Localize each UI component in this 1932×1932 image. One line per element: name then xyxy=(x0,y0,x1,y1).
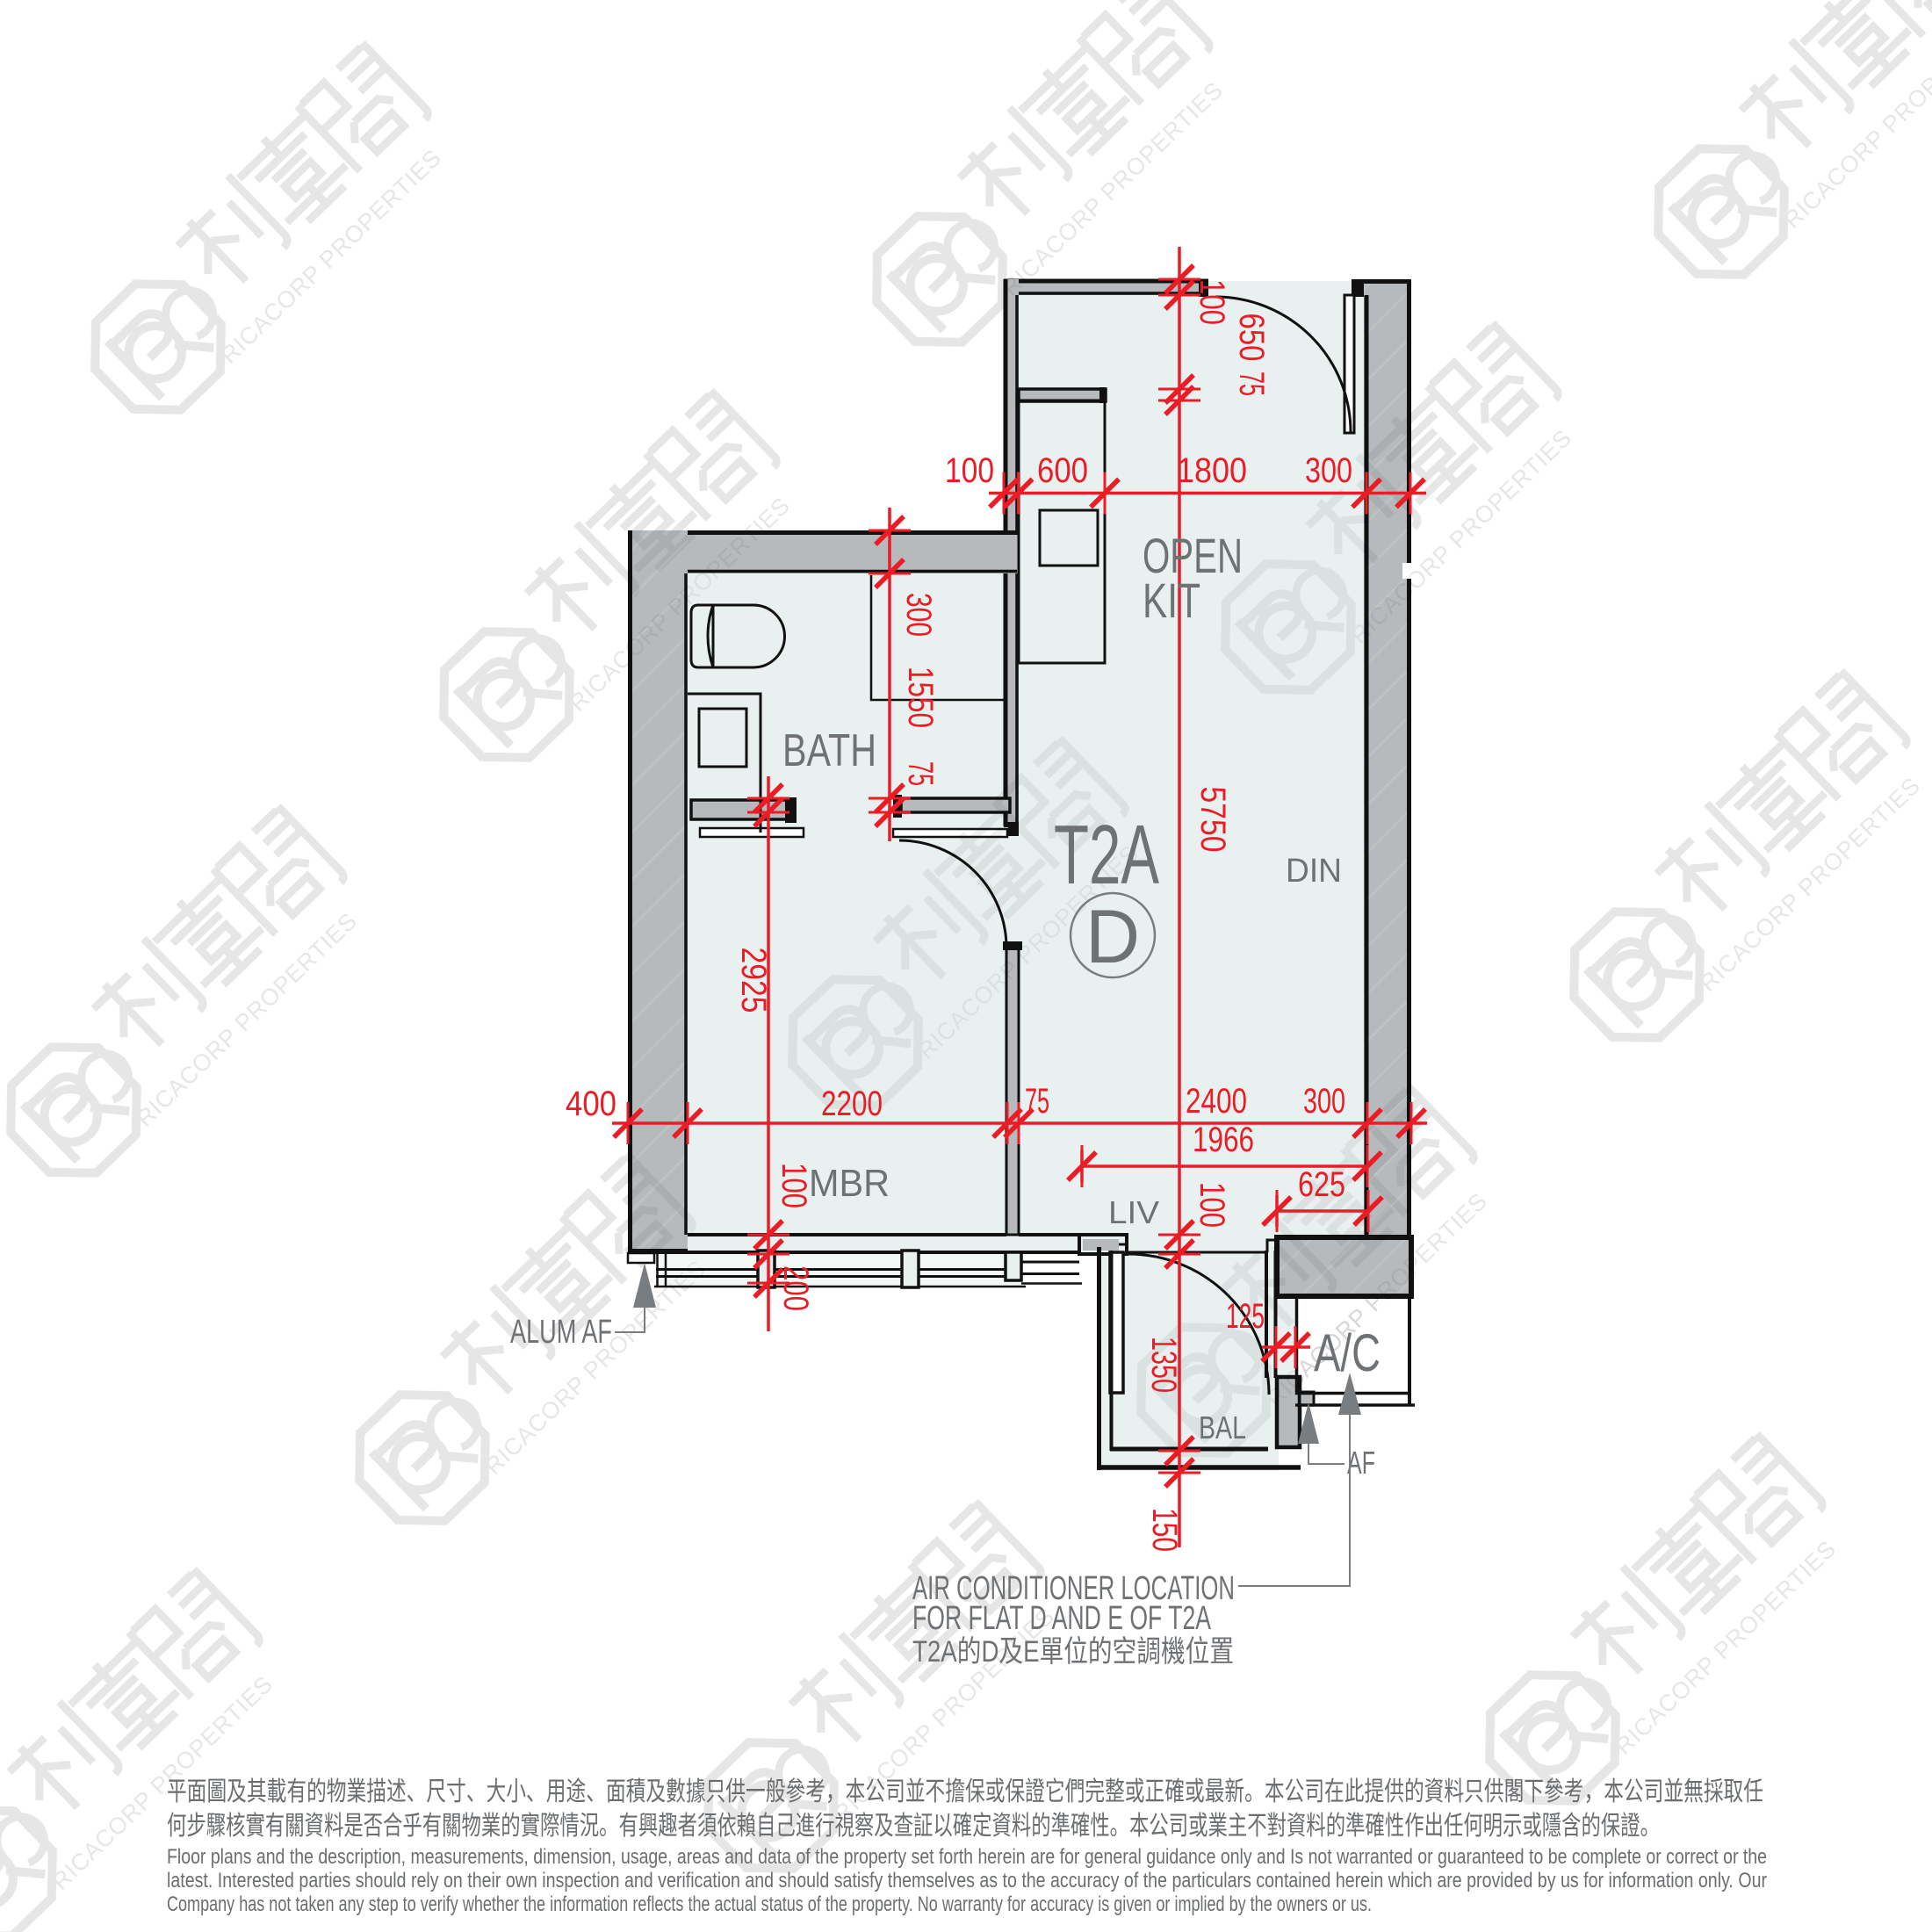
svg-text:600: 600 xyxy=(1037,451,1088,490)
svg-text:75: 75 xyxy=(1232,371,1271,396)
svg-text:625: 625 xyxy=(1298,1165,1345,1204)
svg-text:BATH: BATH xyxy=(782,725,876,776)
svg-text:A/C: A/C xyxy=(1314,1323,1381,1382)
svg-text:latest. Interested parties sho: latest. Interested parties should rely o… xyxy=(167,1869,1767,1892)
svg-text:650: 650 xyxy=(1232,314,1271,362)
svg-text:300: 300 xyxy=(1303,1082,1345,1121)
svg-text:何步驟核實有關資料是否合乎有關物業的實際情況。有興趣者須依賴: 何步驟核實有關資料是否合乎有關物業的實際情況。有興趣者須依賴自己進行視察及查証以… xyxy=(167,1812,1660,1841)
svg-text:400: 400 xyxy=(566,1085,616,1123)
svg-text:2925: 2925 xyxy=(734,948,773,1013)
svg-text:150: 150 xyxy=(1145,1508,1184,1552)
svg-text:Floor plans and the descriptio: Floor plans and the description, measure… xyxy=(167,1845,1767,1869)
svg-text:1800: 1800 xyxy=(1177,451,1247,490)
svg-text:75: 75 xyxy=(901,761,940,786)
svg-text:125: 125 xyxy=(1226,1297,1265,1336)
svg-text:2400: 2400 xyxy=(1186,1082,1247,1121)
svg-text:DIN: DIN xyxy=(1286,853,1342,890)
svg-text:100: 100 xyxy=(945,451,994,490)
svg-text:5750: 5750 xyxy=(1193,787,1232,853)
svg-text:BAL: BAL xyxy=(1199,1409,1246,1445)
svg-text:KIT: KIT xyxy=(1143,573,1200,628)
svg-text:AF: AF xyxy=(1347,1445,1375,1481)
svg-text:1350: 1350 xyxy=(1144,1337,1183,1393)
svg-text:200: 200 xyxy=(776,1265,815,1311)
svg-text:MBR: MBR xyxy=(809,1162,890,1205)
svg-text:平面圖及其載有的物業描述、尺寸、大小、用途、面積及數據只供一: 平面圖及其載有的物業描述、尺寸、大小、用途、面積及數據只供一般參考，本公司並不擔… xyxy=(167,1777,1763,1806)
svg-text:LIV: LIV xyxy=(1108,1194,1159,1230)
svg-text:Company has not taken any step: Company has not taken any step to verify… xyxy=(167,1892,1372,1916)
svg-text:100: 100 xyxy=(1193,1182,1231,1228)
svg-text:300: 300 xyxy=(1305,451,1352,490)
svg-text:100: 100 xyxy=(1193,279,1231,325)
svg-text:2200: 2200 xyxy=(821,1085,883,1123)
svg-text:T2A的D及E單位的空調機位置: T2A的D及E單位的空調機位置 xyxy=(912,1635,1234,1669)
svg-text:D: D xyxy=(1085,895,1140,979)
svg-text:75: 75 xyxy=(1025,1082,1049,1121)
svg-text:FOR FLAT D AND E OF T2A: FOR FLAT D AND E OF T2A xyxy=(912,1600,1211,1637)
svg-text:100: 100 xyxy=(775,1163,813,1208)
svg-text:1550: 1550 xyxy=(901,667,940,728)
svg-text:ALUM AF: ALUM AF xyxy=(510,1314,612,1351)
svg-text:1966: 1966 xyxy=(1193,1121,1254,1159)
svg-text:T2A: T2A xyxy=(1054,808,1159,902)
svg-text:300: 300 xyxy=(899,593,938,637)
